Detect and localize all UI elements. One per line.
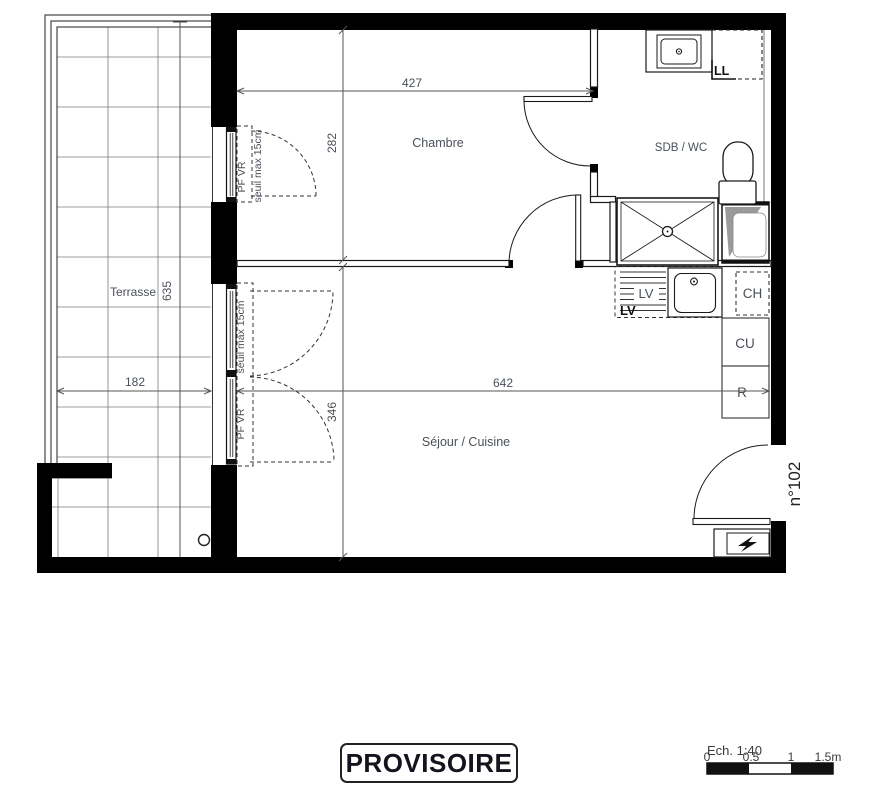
sejour-window-tag: PF VR bbox=[235, 408, 247, 439]
chambre-window bbox=[213, 126, 317, 202]
chambre-window-note: seuil max 15cm bbox=[252, 129, 264, 202]
scale-tick-1: 1 bbox=[788, 750, 795, 764]
cooktop-unit: CU bbox=[722, 318, 769, 366]
terrasse-height-dim: 635 bbox=[160, 281, 174, 301]
water-heater-label: CH bbox=[743, 286, 763, 301]
refrigerator-label: R bbox=[737, 385, 747, 400]
provisoire-stamp: PROVISOIRE bbox=[341, 744, 517, 782]
shower bbox=[617, 198, 718, 265]
sejour-height-dim: 346 bbox=[325, 402, 339, 422]
washing-machine: LL bbox=[712, 30, 762, 79]
terrace-railing bbox=[45, 15, 211, 463]
scale-tick-05: 0.5 bbox=[743, 750, 760, 764]
floor-plan-page: LL LV LV CH CU R bbox=[0, 0, 888, 800]
chambre-label: Chambre bbox=[412, 136, 463, 150]
terrasse-width-dim: 182 bbox=[125, 375, 145, 389]
kitchen-sink bbox=[668, 268, 722, 317]
dishwasher-label: LV bbox=[639, 286, 654, 301]
electrical-panel bbox=[714, 529, 770, 557]
sejour-window-note: seuil max 15cm bbox=[235, 300, 247, 373]
sejour-french-window bbox=[213, 283, 335, 466]
water-heater: CH bbox=[736, 272, 769, 315]
sejour-cuisine-label: Séjour / Cuisine bbox=[422, 435, 510, 449]
provisoire-stamp-label: PROVISOIRE bbox=[346, 748, 513, 778]
scale-bar: Ech. 1:40 0 0.5 1 1.5m bbox=[704, 743, 842, 774]
scale-tick-0: 0 bbox=[704, 750, 711, 764]
vanity-unit bbox=[722, 202, 769, 263]
terrace-drain bbox=[199, 535, 210, 546]
dishwasher: LV LV bbox=[620, 272, 666, 318]
sejour-width-dim: 642 bbox=[493, 376, 513, 390]
chambre-door bbox=[509, 195, 581, 264]
sdb-door bbox=[524, 97, 592, 167]
floor-plan-drawing: LL LV LV CH CU R bbox=[0, 0, 888, 800]
toilet bbox=[719, 142, 756, 204]
dishwasher-corner-label: LV bbox=[620, 303, 636, 318]
chambre-window-tag: PF VR bbox=[236, 161, 248, 192]
entry-door bbox=[693, 445, 770, 525]
chambre-height-dim: 282 bbox=[325, 133, 339, 153]
cooktop-label: CU bbox=[735, 336, 755, 351]
washing-machine-label: LL bbox=[714, 64, 730, 78]
refrigerator-unit: R bbox=[722, 366, 769, 418]
scale-tick-15: 1.5m bbox=[815, 750, 842, 764]
sdb-wc-label: SDB / WC bbox=[655, 142, 707, 154]
unit-number-label: n°102 bbox=[785, 462, 804, 507]
washbasin bbox=[646, 30, 712, 72]
terrasse-label: Terrasse bbox=[110, 285, 156, 299]
chambre-width-dim: 427 bbox=[402, 76, 422, 90]
